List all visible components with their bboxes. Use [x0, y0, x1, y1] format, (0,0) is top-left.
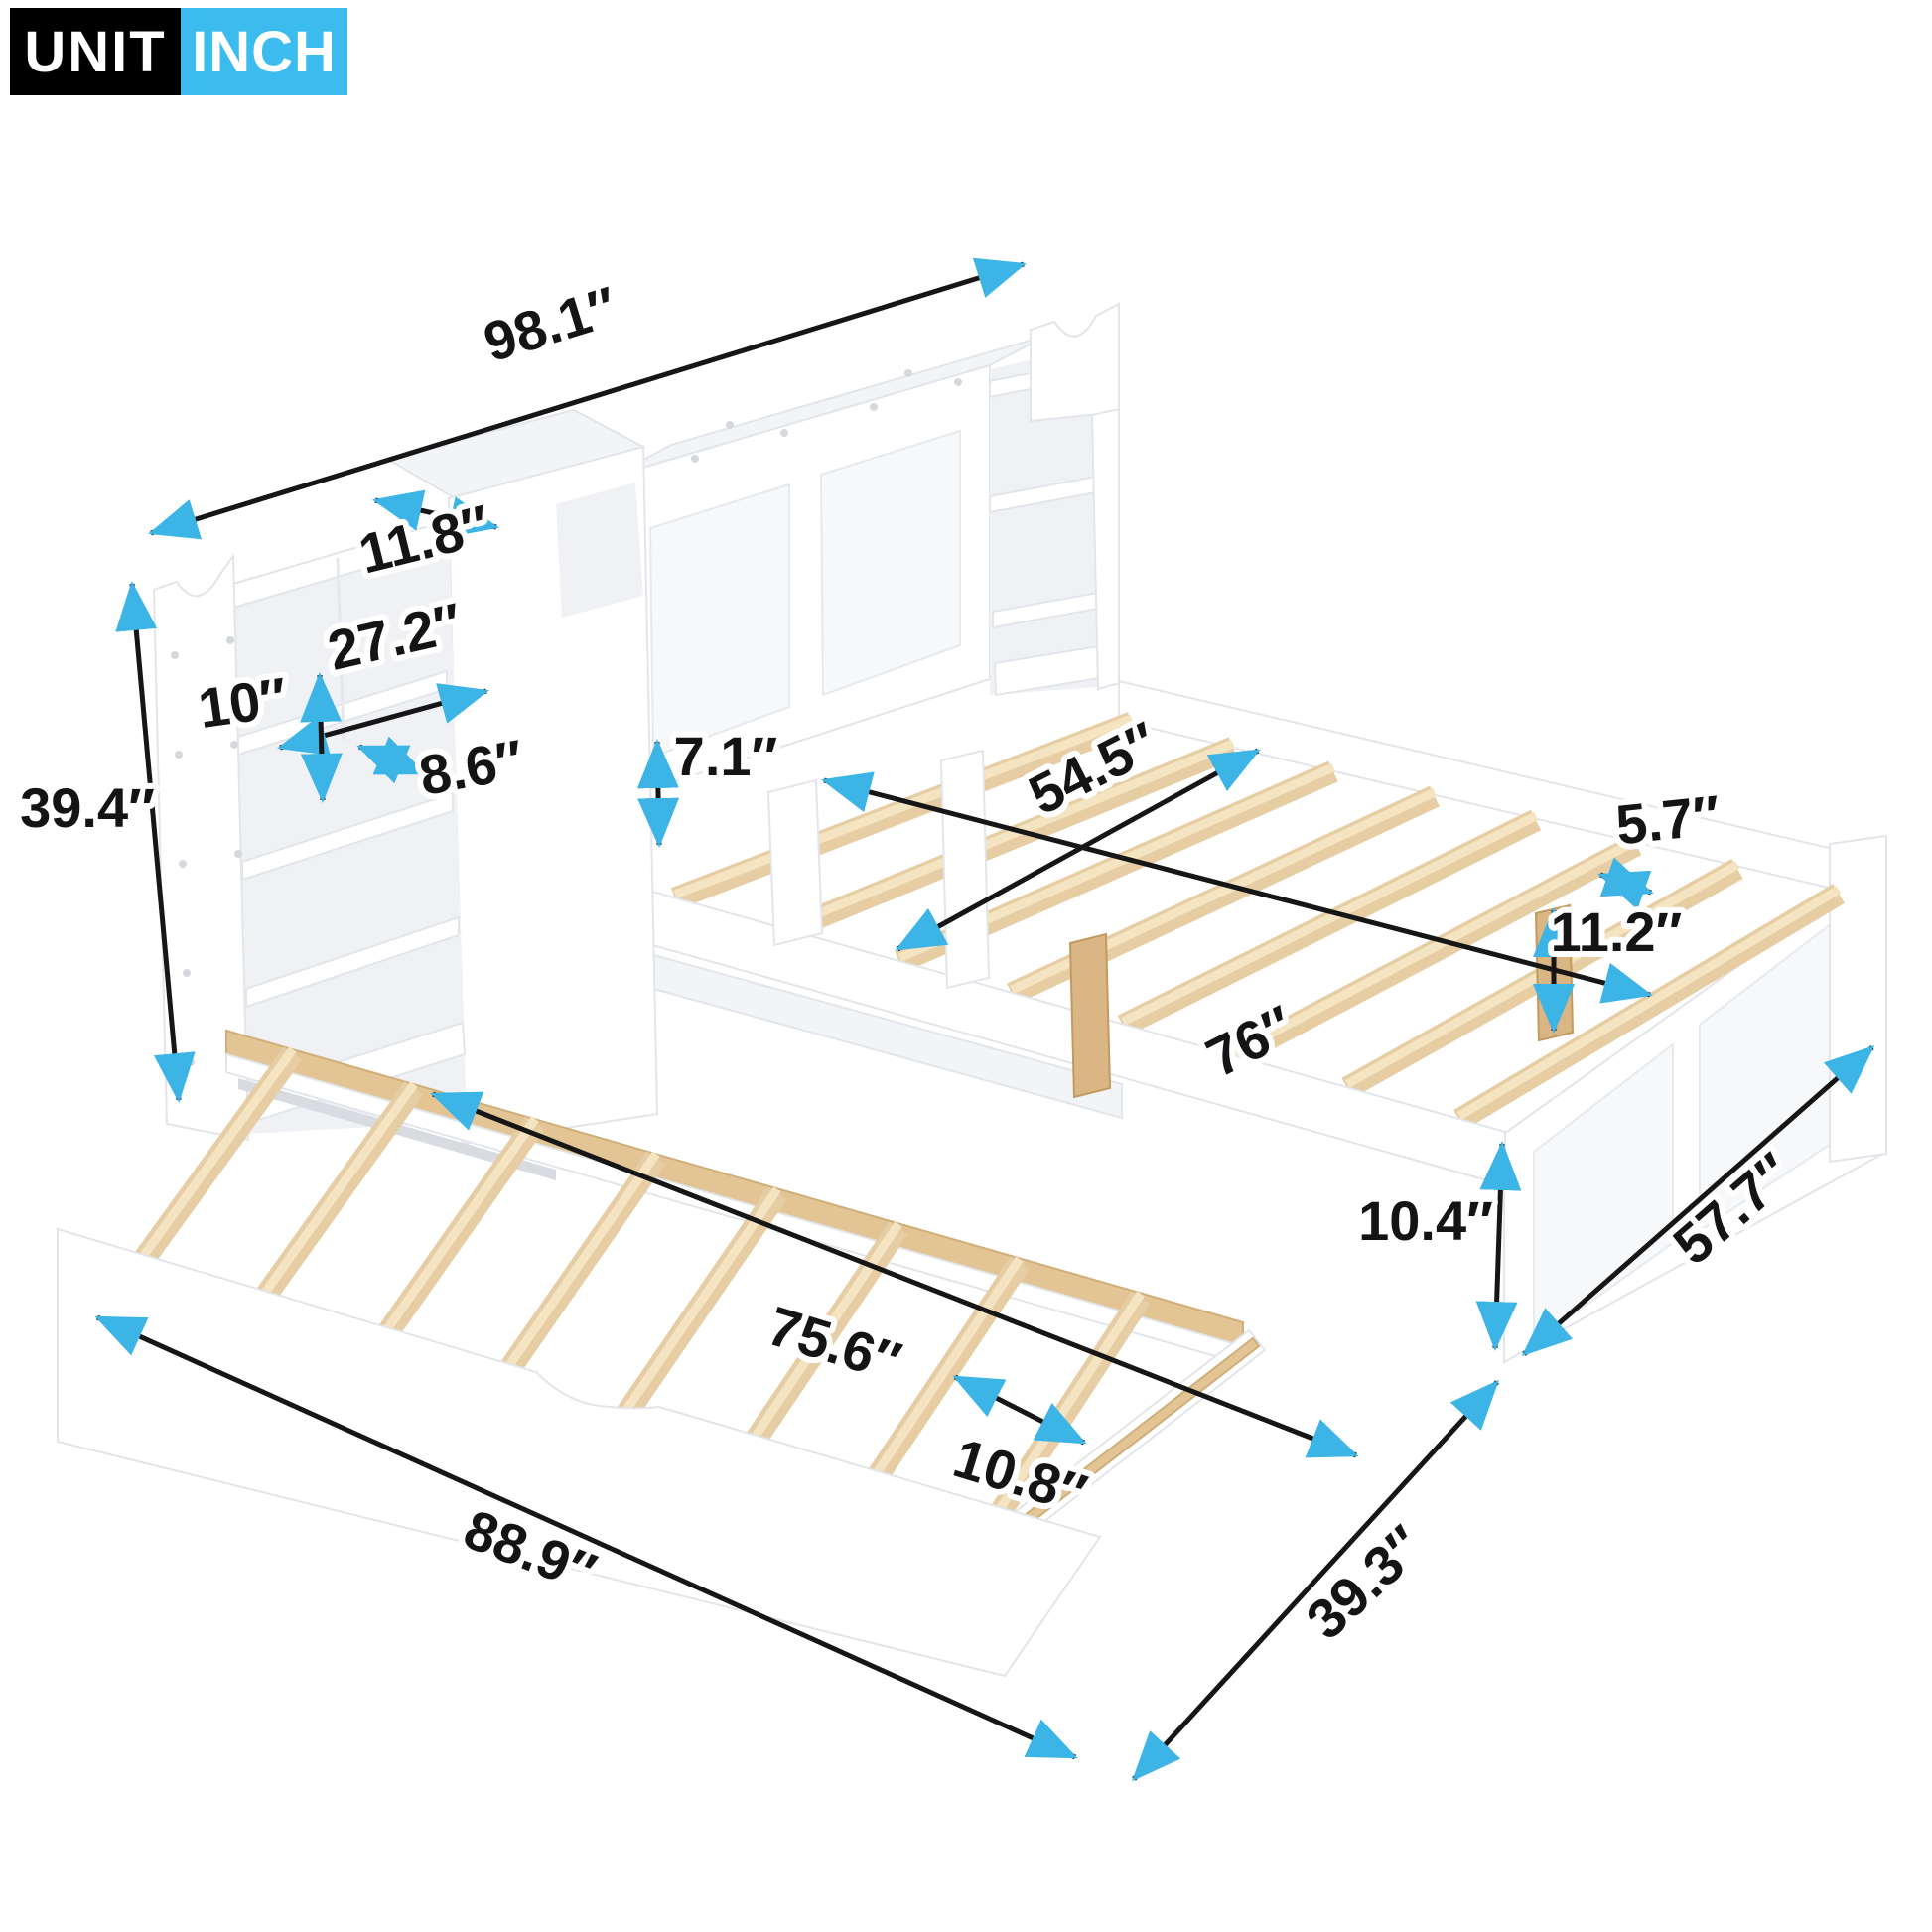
bed-near-rail: [618, 882, 1505, 1185]
mid-tower-cubby: [556, 483, 643, 618]
foot-corner-post: [1830, 836, 1886, 1162]
label-platform-clearance: 7.1″: [674, 725, 778, 787]
bed-far-rail: [1119, 681, 1879, 899]
headboard-support-post-a: [768, 780, 822, 945]
headboard-support-post-b: [941, 751, 989, 988]
right-end-panel-top: [1031, 304, 1119, 421]
bed-dimension-diagram: 98.1″ 11.8″ 27.2″ 10″ 8.6″ 39.4″ 7.1″ 54…: [0, 0, 1932, 1932]
unit-badge-label: UNIT: [10, 8, 181, 95]
diagram-stage: 98.1″ 11.8″ 27.2″ 10″ 8.6″ 39.4″ 7.1″ 54…: [0, 0, 1932, 1932]
label-headboard-height: 39.4″: [20, 776, 155, 839]
dim-platform-clearance-line: [657, 742, 659, 845]
label-side-rail-height: 10.4″: [1358, 1189, 1493, 1252]
unit-badge-value: INCH: [181, 8, 347, 95]
unit-badge: UNIT INCH: [10, 8, 347, 95]
center-wood-leg: [1070, 934, 1110, 1097]
label-shelf-opening-height: 10″: [195, 665, 291, 740]
label-under-bed-clearance: 11.2″: [1551, 900, 1683, 963]
label-slat-gap: 5.7″: [1613, 783, 1724, 857]
dim-slat-gap-line: [1600, 875, 1651, 893]
label-overall-width: 98.1″: [477, 274, 623, 373]
dim-shelf-opening-height-line: [320, 675, 323, 800]
